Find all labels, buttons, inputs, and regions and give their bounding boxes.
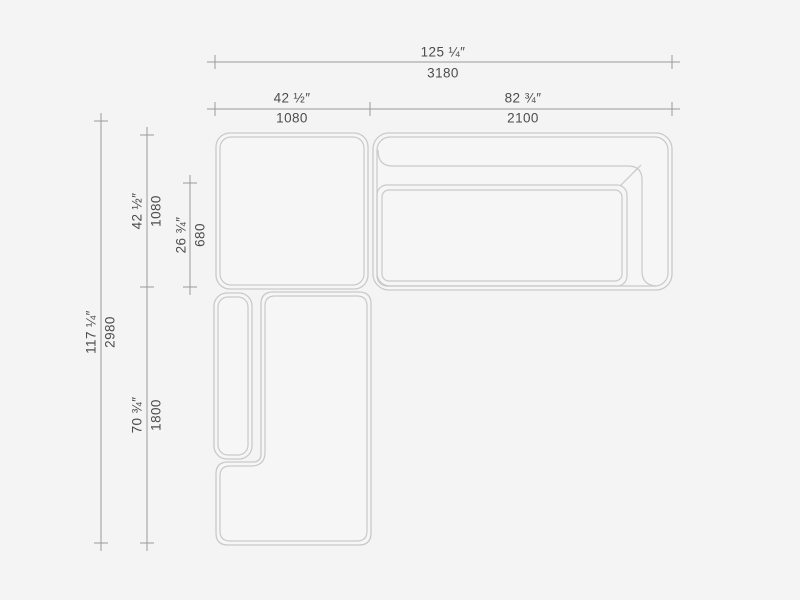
label-sofa-width-inches: 82 ¾″: [505, 91, 542, 106]
sofa-top-view-drawing: [0, 0, 800, 600]
chaise-armrest-outer-outline: [214, 293, 252, 459]
label-left-module-width-inches: 42 ½″: [274, 91, 311, 106]
ottoman-module: [216, 133, 368, 289]
label-overall-width-inches: 125 ¼″: [421, 45, 466, 60]
label-left-module-depth-mm: 1080: [149, 195, 164, 227]
chaise-module: [214, 292, 371, 545]
label-left-module-depth-inches: 42 ½″: [130, 193, 145, 230]
label-seat-depth-inches: 26 ¾″: [174, 217, 189, 254]
label-overall-depth-mm: 2980: [103, 316, 118, 348]
dimension-lines: [94, 55, 680, 551]
label-overall-depth-inches: 117 ¼″: [84, 310, 99, 354]
sofa-modules: [214, 133, 672, 545]
label-seat-depth-mm: 680: [193, 223, 208, 247]
sofa-module: [373, 133, 672, 290]
label-chaise-length-mm: 1800: [149, 399, 164, 431]
label-left-module-width-mm: 1080: [276, 111, 308, 126]
label-chaise-length-inches: 70 ¾″: [130, 397, 145, 434]
dimension-drawing-canvas: 125 ¼″ 3180 42 ½″ 1080 82 ¾″ 2100 117 ¼″…: [0, 0, 800, 600]
ottoman-outer-outline: [216, 133, 368, 289]
label-overall-width-mm: 3180: [427, 66, 459, 81]
left-depths-dimension: [140, 127, 154, 551]
label-sofa-width-mm: 2100: [507, 111, 539, 126]
